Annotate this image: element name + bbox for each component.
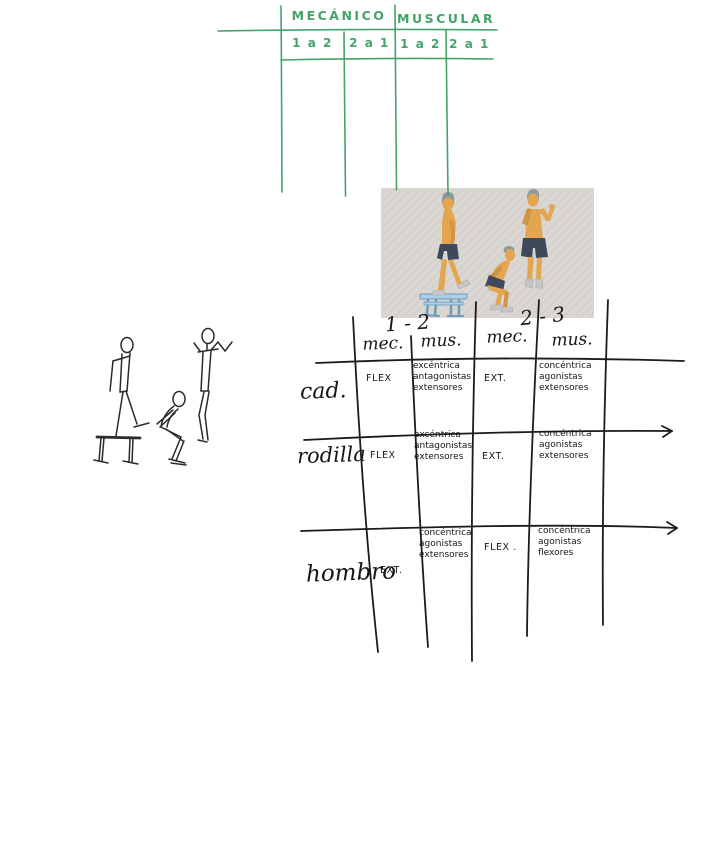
sketch-figure-step-down [110,338,149,437]
cell-rodilla-mus1: excéntrica antagonistas extensores [414,430,478,463]
green-table-lines [218,5,497,196]
notes-col-mec-1: mec. [358,333,409,355]
cell-cad-mec1: FLEX [366,373,392,384]
sketch-figure-jump [194,329,232,443]
notes-col-mec-2: mec. [481,326,534,348]
row-label-cad: cad. [300,378,347,405]
cell-rodilla-mus2: concéntrica agonistas extensores [539,429,609,462]
sketch-figure-squat [157,392,186,466]
cell-hombro-mec2: FLEX . [484,542,517,553]
cell-cad-mus1: excéntrica antagonistas extensores [413,361,477,394]
green-table-col-1a2: 1 a 2 [281,36,344,50]
cell-cad-mus2: concéntrica agonistas extensores [539,361,605,394]
green-table-col-1a2-b: 1 a 2 [395,37,446,51]
sketch-bench [94,437,140,464]
notes-col-mus-2: mus. [544,329,601,351]
cell-rodilla-mec2: EXT. [482,451,504,462]
cell-hombro-mus2: concéntrica agonistas flexores [538,526,604,559]
notes-col-mus-1: mus. [412,330,471,352]
hand-drawn-strokes [0,0,703,848]
green-table-col-2a1: 2 a 1 [344,36,395,50]
cell-rodilla-mec1: FLEX [370,450,396,461]
notebook-page: MECÁNICO MUSCULAR 1 a 2 2 a 1 1 a 2 2 a … [0,0,703,848]
cell-hombro-mus1: concéntrica agonistas extensores [419,528,477,561]
green-table-header-mecanico: MECÁNICO [283,8,395,23]
row-label-rodilla: rodilla [297,442,367,468]
green-table-header-muscular: MUSCULAR [397,11,491,26]
cell-cad-mec2: EXT. [484,373,506,384]
cell-hombro-mec1: EXT. [380,565,402,576]
exercise-sketch [94,329,232,466]
green-table-col-2a1-b: 2 a 1 [446,37,493,51]
